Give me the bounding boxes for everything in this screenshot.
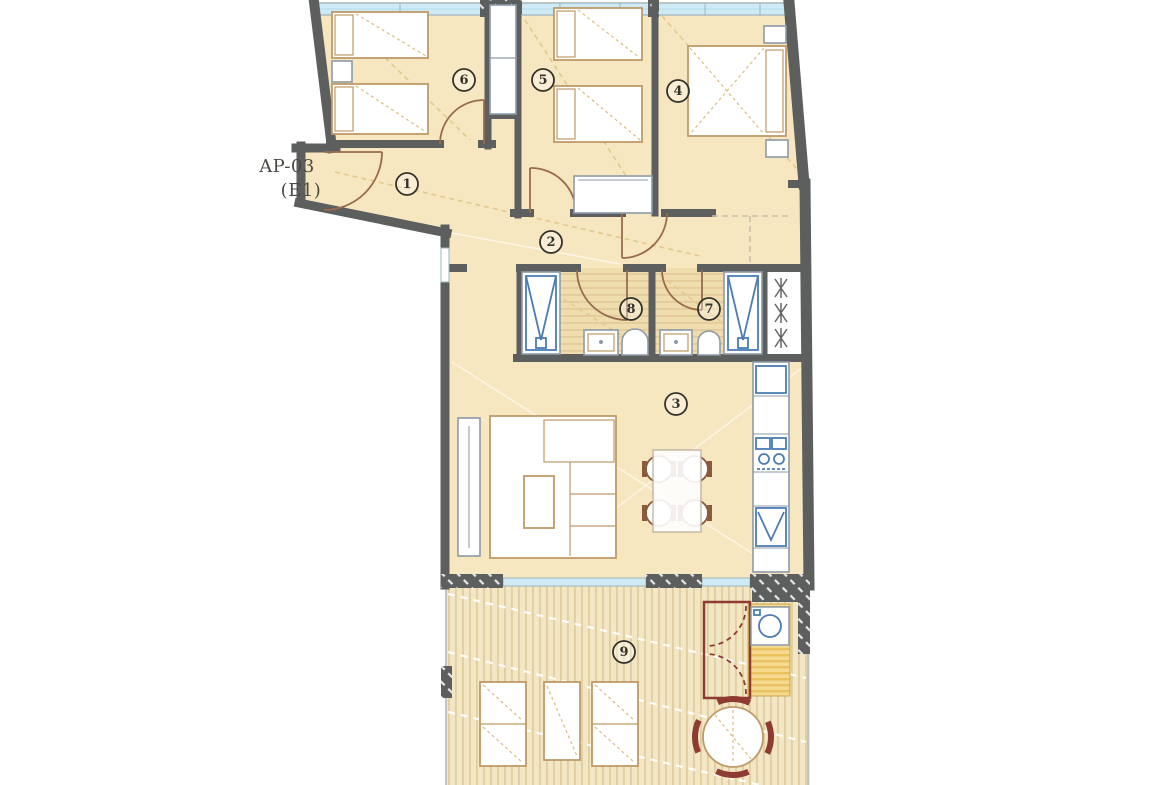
corridor-window [441, 248, 449, 282]
washbasin [584, 330, 618, 355]
nightstand [764, 26, 786, 43]
single-bed [332, 12, 428, 58]
single-bed [554, 8, 642, 60]
terrace-pier [646, 574, 702, 588]
toilet [622, 329, 648, 355]
terrace-right-wall [798, 584, 810, 654]
single-bed [332, 84, 428, 134]
svg-text:2: 2 [546, 235, 555, 250]
wardrobe-floor [766, 268, 802, 358]
wardrobe [490, 5, 516, 114]
dining-table [653, 450, 701, 532]
room-number-2-corridor: 2 [540, 231, 562, 253]
apartment-code: AP-03 [258, 156, 315, 177]
washbasin [660, 330, 692, 355]
svg-text:7: 7 [704, 302, 713, 317]
svg-text:4: 4 [673, 84, 682, 99]
floor-plan: 1 2 3 4 5 6 7 8 9 AP-03 (E1) [0, 0, 1170, 785]
svg-text:3: 3 [671, 397, 680, 412]
shower [522, 272, 560, 354]
toilet [698, 331, 720, 355]
svg-text:8: 8 [626, 302, 635, 317]
double-bed [688, 46, 786, 136]
terrace-left-pier [441, 666, 452, 698]
shower [724, 272, 762, 354]
single-bed [554, 86, 642, 142]
sun-lounger [592, 682, 638, 766]
room-number-8-bathroom: 8 [620, 298, 642, 320]
svg-text:9: 9 [619, 645, 628, 660]
room-number-9-terrace: 9 [613, 641, 635, 663]
room-number-5-bedroom: 5 [532, 69, 554, 91]
room-number-1-hall: 1 [396, 173, 418, 195]
svg-text:5: 5 [538, 73, 547, 88]
room-number-6-bedroom: 6 [453, 69, 475, 91]
terrace-pier [441, 574, 503, 588]
wardrobe [574, 176, 652, 213]
svg-text:1: 1 [402, 177, 411, 192]
svg-text:6: 6 [459, 73, 468, 88]
room-number-7-bathroom: 7 [698, 298, 720, 320]
dining-set [642, 450, 712, 532]
nightstand [332, 61, 352, 82]
room-number-3-living: 3 [665, 393, 687, 415]
apartment-type: (E1) [281, 180, 322, 201]
coffee-table [524, 476, 554, 528]
terrace-glass-doors [503, 578, 750, 586]
floor-plan-canvas: 1 2 3 4 5 6 7 8 9 AP-03 (E1) [0, 0, 1170, 785]
sun-lounger [480, 682, 526, 766]
room-number-4-bedroom: 4 [667, 80, 689, 102]
nightstand [766, 140, 788, 157]
kitchen-counter [753, 362, 789, 572]
sun-lounger [544, 682, 580, 760]
washing-machine-icon [751, 607, 789, 645]
